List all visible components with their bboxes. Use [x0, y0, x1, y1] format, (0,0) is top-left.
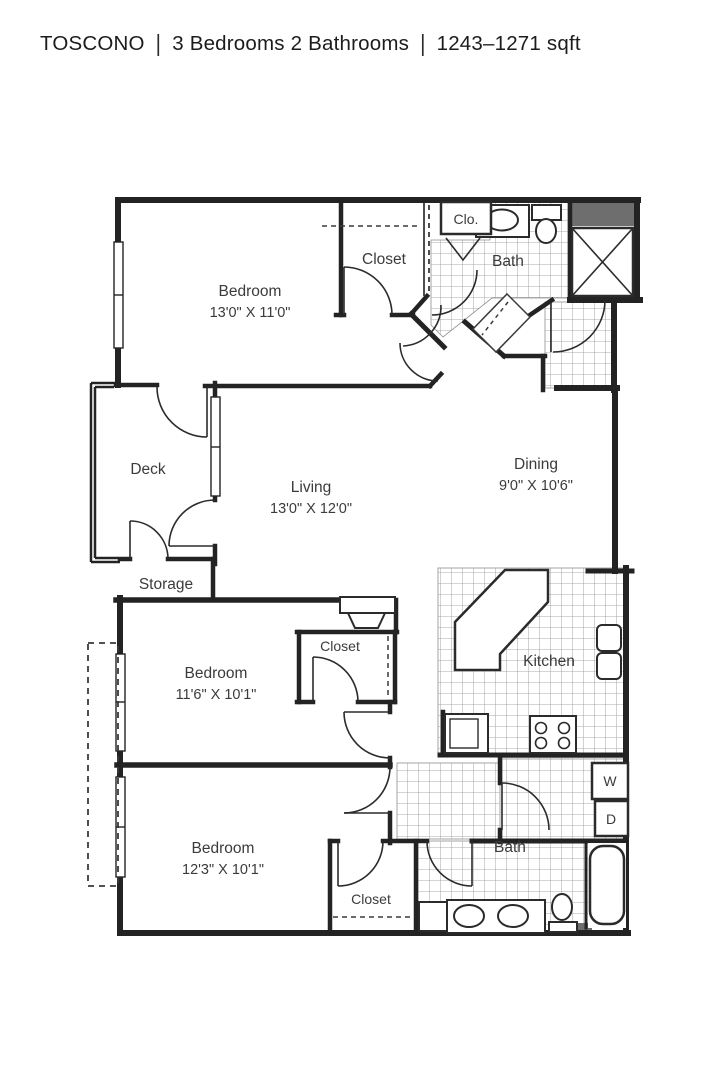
- plan-name: TOSCONO: [40, 32, 145, 55]
- floor-plan-page: TOSCONO|3 Bedrooms 2 Bathrooms|1243–1271…: [0, 0, 720, 1080]
- dining-dims: 9'0" X 10'6": [499, 478, 573, 494]
- washer-label: W: [603, 773, 617, 789]
- living-dims: 13'0" X 12'0": [270, 501, 352, 517]
- bedroom-mid-door: [344, 712, 390, 758]
- title-separator-2: |: [420, 30, 426, 58]
- deck-label: Deck: [130, 461, 166, 478]
- deck-window: [211, 397, 220, 496]
- living-hall-door: [400, 343, 438, 381]
- living-label: Living: [291, 479, 332, 496]
- kitchen-sink: [445, 714, 488, 753]
- bedroom-bottom-door: [344, 767, 390, 813]
- fireplace: [340, 597, 395, 628]
- stove: [530, 716, 576, 753]
- hall-floor: [397, 763, 500, 839]
- plan-sqft: 1243–1271 sqft: [437, 32, 581, 55]
- bedroom-bottom-label: Bedroom: [192, 840, 255, 857]
- kitchen-label: Kitchen: [523, 653, 575, 670]
- dining-label: Dining: [514, 456, 558, 473]
- closet-top-label: Closet: [362, 251, 407, 268]
- dark-band-top-right: [570, 201, 638, 226]
- closet-bottom-label: Closet: [351, 891, 391, 907]
- closet-top-door: [344, 267, 392, 315]
- bath-bottom-label: Bath: [494, 839, 526, 856]
- optional-patio-dashed: [88, 643, 118, 886]
- storage-door: [130, 521, 168, 559]
- title-separator-1: |: [156, 30, 162, 58]
- floor-plan-drawing: Bedroom 13'0" X 11'0" Closet Clo. Bath D…: [0, 0, 720, 1080]
- living-deck-door: [169, 500, 215, 546]
- bedroom-mid-label: Bedroom: [185, 665, 248, 682]
- closet-mid-door: [313, 657, 358, 702]
- bedroom-top-deck-door: [157, 387, 207, 437]
- vanity-bottom: [419, 900, 545, 933]
- bedroom-bottom-dims: 12'3" X 10'1": [182, 862, 264, 878]
- bedroom-top-dims: 13'0" X 11'0": [210, 305, 291, 321]
- bedroom-top-window: [114, 242, 123, 348]
- closet-mid-label: Closet: [320, 638, 360, 654]
- deck-railings: [91, 383, 120, 562]
- dryer-label: D: [606, 811, 616, 827]
- bedroom-mid-dims: 11'6" X 10'1": [176, 687, 257, 703]
- shower: [572, 228, 633, 296]
- bedroom-top-label: Bedroom: [219, 283, 282, 300]
- closet-bottom-door: [338, 841, 383, 886]
- bath-top-label: Bath: [492, 253, 524, 270]
- bathtub: [588, 843, 626, 928]
- plan-specs: 3 Bedrooms 2 Bathrooms: [172, 32, 409, 55]
- plan-title: TOSCONO|3 Bedrooms 2 Bathrooms|1243–1271…: [40, 32, 581, 56]
- clo-label: Clo.: [454, 211, 479, 227]
- storage-label: Storage: [139, 576, 193, 593]
